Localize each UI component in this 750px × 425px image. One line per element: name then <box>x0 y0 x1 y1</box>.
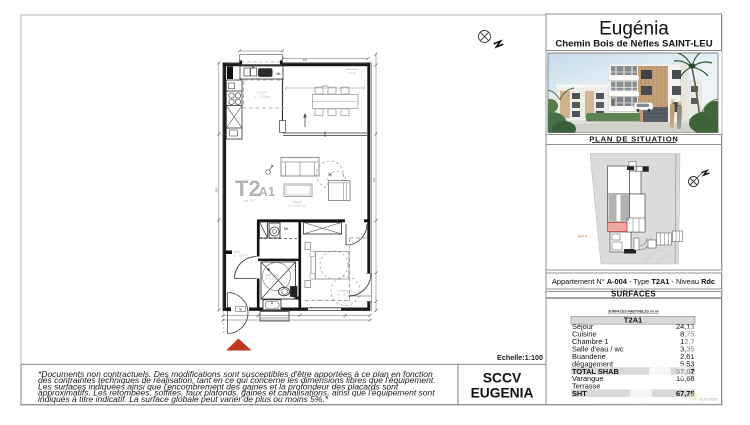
svg-text:90: 90 <box>239 307 243 311</box>
svg-text:BAT A: BAT A <box>578 235 588 239</box>
svg-text:S : 5,53 m²: S : 5,53 m² <box>234 254 248 258</box>
svg-text:Cuisine: Cuisine <box>256 91 267 95</box>
svg-text:SURFACES HABITABLES en m²: SURFACES HABITABLES en m² <box>608 310 660 314</box>
svg-text:Chemin Bois de Nèfles SAINT-LE: Chemin Bois de Nèfles SAINT-LEU <box>555 39 712 50</box>
svg-text:T2: T2 <box>235 176 261 201</box>
svg-text:hab. 26.2: hab. 26.2 <box>244 199 255 203</box>
svg-text:382: 382 <box>372 177 376 182</box>
svg-text:ML: ML <box>284 227 289 231</box>
svg-text:A OUT 2024: A OUT 2024 <box>698 398 717 402</box>
svg-text:Echelle:1:100: Echelle:1:100 <box>497 353 543 362</box>
svg-text:A1: A1 <box>259 184 276 199</box>
svg-text:869: 869 <box>215 187 219 192</box>
svg-text:SURFACES: SURFACES <box>611 290 656 299</box>
svg-text:PLAN DE SITUATION: PLAN DE SITUATION <box>589 134 678 143</box>
svg-text:ML: ML <box>277 72 282 76</box>
svg-text:Salle d'eau: Salle d'eau <box>265 273 279 277</box>
svg-text:Eugénia: Eugénia <box>599 19 669 40</box>
svg-text:S : 24,13 m²: S : 24,13 m² <box>288 204 305 208</box>
svg-text:T2A1: T2A1 <box>624 316 643 325</box>
svg-text:316: 316 <box>322 84 327 88</box>
svg-text:indiqués à titre indicatif. La: indiqués à titre indicatif. La surface g… <box>38 394 329 404</box>
svg-text:381: 381 <box>303 58 308 62</box>
svg-text:S : 3,35 m²: S : 3,35 m² <box>266 277 279 281</box>
svg-text:EUGENIA: EUGENIA <box>471 386 534 401</box>
svg-text:SCCV: SCCV <box>483 371 522 386</box>
svg-text:SHT: SHT <box>572 389 587 398</box>
svg-text:± 0,00: ± 0,00 <box>348 71 356 75</box>
svg-text:Appartement N° A-004 - Type T2: Appartement N° A-004 - Type T2A1 - Nivea… <box>552 277 715 286</box>
svg-text:S : 8,75 m²: S : 8,75 m² <box>254 95 270 99</box>
